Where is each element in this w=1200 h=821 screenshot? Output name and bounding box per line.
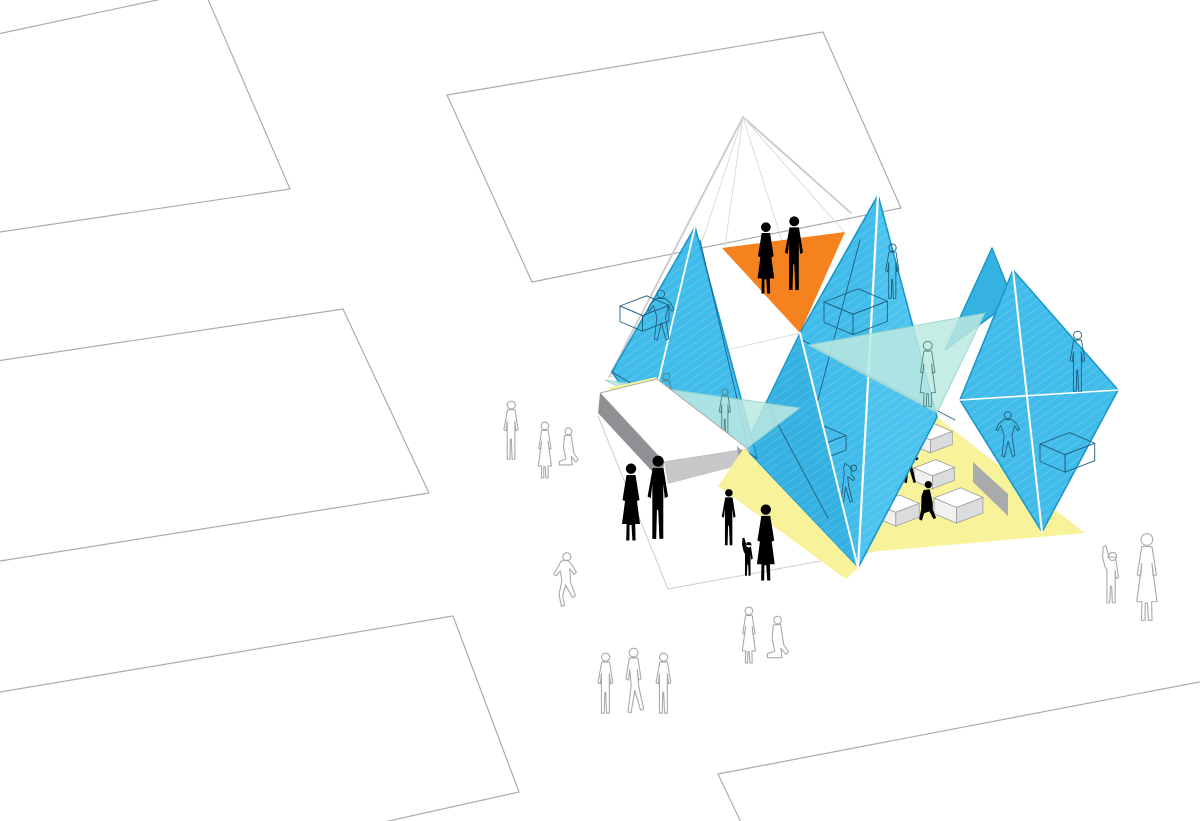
city-block-top-left [0,0,290,235]
outlined-running-child-shape [554,553,577,607]
outlined-man-left-group-shape [504,401,518,459]
city-block-mid-left [0,309,429,565]
outlined-woman-far-right-shape [1137,534,1157,621]
outlined-man-plaza-3 [656,653,671,713]
pavilion-diagram [0,0,1200,821]
outlined-sitter-plaza-right [767,616,788,657]
outlined-waving-child-right-shape [1103,546,1119,603]
outlined-man-plaza-1 [598,653,613,713]
silhouette-child-walking-shape [742,538,753,576]
outlined-woman-far-right [1137,534,1157,621]
silhouette-visitor-left-1-shape [622,464,640,541]
outlined-man-plaza-2-shape [626,648,644,712]
outlined-sitter-plaza-right-shape [767,616,788,657]
outlined-woman-plaza-right [742,607,755,663]
outlined-woman-plaza-right-shape [742,607,755,663]
outlined-woman-left-group [538,422,551,478]
diagram-canvas [0,0,1200,821]
outlined-man-left-group [504,401,518,459]
silhouette-man-center-shape [722,489,736,545]
outlined-waving-child-right [1103,546,1119,603]
outlined-man-plaza-1-shape [598,653,613,713]
silhouette-man-center [722,489,736,545]
outlined-sitter-left-group-shape [559,428,578,465]
outlined-running-child [554,553,577,607]
outlined-sitter-left-group [559,428,578,465]
outlined-man-plaza-3-shape [656,653,671,713]
city-block-bottom-right-top-edge [718,679,1200,774]
city-block-bottom-right-left-edge [718,774,747,821]
silhouette-visitor-left-1 [622,464,640,541]
pyramid-edge-right [743,117,851,213]
outlined-woman-left-group-shape [538,422,551,478]
outlined-man-plaza-2 [626,648,644,712]
city-block-bottom-left [0,616,519,821]
silhouette-child-walking [742,538,753,576]
